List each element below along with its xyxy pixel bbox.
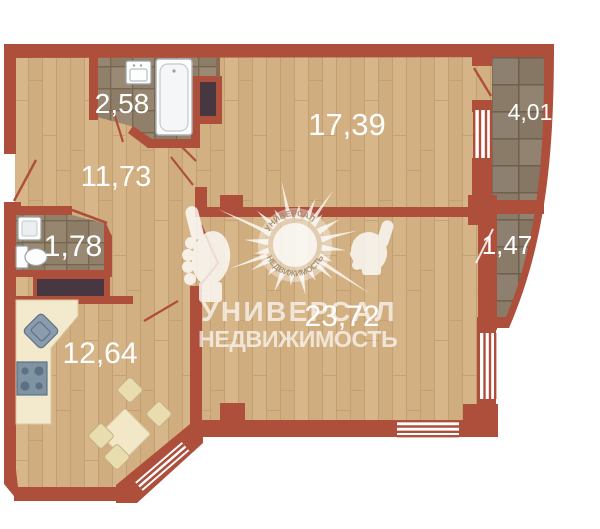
svg-text:11,73: 11,73 <box>81 161 151 193</box>
svg-text:4,01: 4,01 <box>508 99 553 125</box>
svg-text:12,64: 12,64 <box>62 337 137 370</box>
svg-text:23,72: 23,72 <box>304 300 379 333</box>
svg-text:1,47: 1,47 <box>482 230 533 260</box>
svg-text:17,39: 17,39 <box>308 107 386 142</box>
svg-text:2,58: 2,58 <box>95 88 150 119</box>
svg-text:1,78: 1,78 <box>44 230 102 263</box>
